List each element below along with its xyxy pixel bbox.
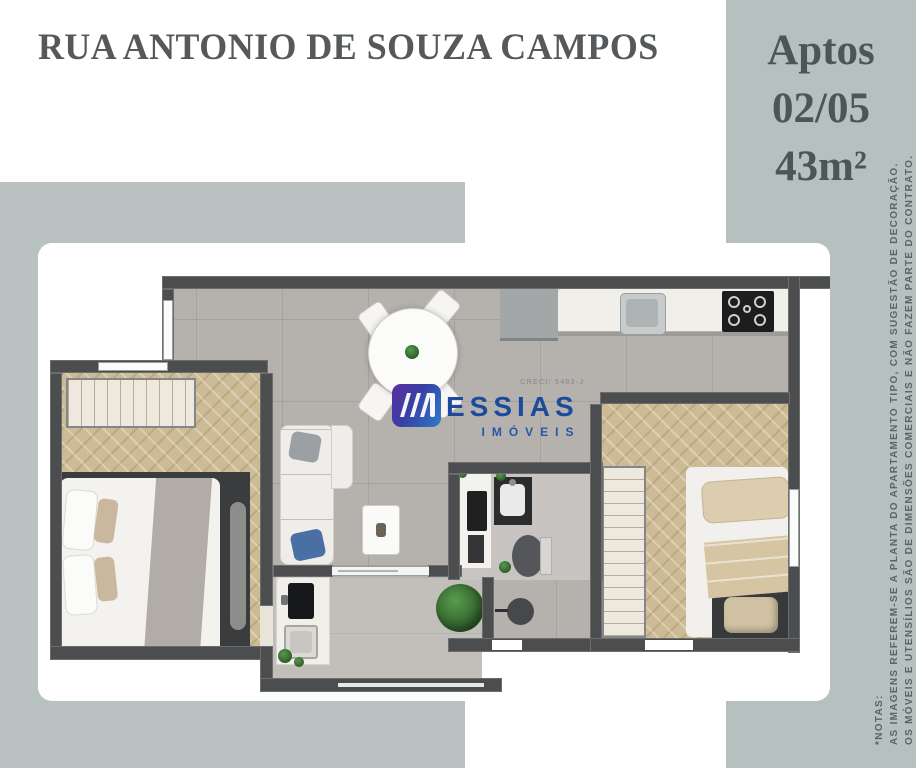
laundry-faucet-icon — [281, 595, 288, 605]
bath-sink — [500, 484, 525, 516]
window — [163, 300, 173, 360]
messias-logo-icon — [392, 384, 441, 427]
table-plant-icon — [405, 345, 419, 359]
bedroom2-wardrobe — [602, 466, 646, 638]
wall-segment — [600, 392, 790, 404]
sliding-door-rail — [338, 570, 398, 572]
wall-segment — [162, 276, 830, 289]
stool-stem — [495, 609, 508, 612]
bedroom1-wardrobe — [66, 378, 196, 428]
kitchen-cabinet — [500, 289, 558, 341]
kitchen-sink-basin — [626, 299, 658, 327]
tv-icon — [467, 491, 487, 531]
tv-console — [468, 535, 484, 563]
wall-segment — [788, 276, 800, 653]
wall-segment — [273, 565, 333, 577]
wall-segment — [260, 373, 273, 606]
brand-subtitle: IMÓVEIS — [456, 425, 606, 439]
wall-segment — [448, 462, 603, 474]
stool — [507, 598, 534, 625]
burner-icon — [743, 305, 751, 313]
door-opening — [645, 640, 693, 650]
plant-icon — [278, 649, 292, 663]
notes-header: *NOTAS: — [872, 45, 887, 745]
legal-notes-vertical: *NOTAS: AS IMAGENS REFEREM-SE A PLANTA D… — [872, 45, 916, 745]
bath-faucet-icon — [509, 479, 516, 486]
wall-segment — [50, 646, 268, 660]
notes-line-2: OS MÓVEIS E UTENSÍLIOS SÃO DE DIMENSÕES … — [902, 45, 916, 745]
wall-segment — [448, 638, 603, 652]
street-title: RUA ANTONIO DE SOUZA CAMPOS — [38, 26, 659, 69]
creci-number: CRECI: 5493-J — [520, 377, 584, 386]
sofa-chaise — [331, 425, 353, 489]
burner-icon — [728, 314, 740, 326]
burner-icon — [754, 296, 766, 308]
real-estate-flyer: RUA ANTONIO DE SOUZA CAMPOS Aptos 02/05 … — [0, 0, 916, 768]
sofa-pillow-gray — [288, 431, 322, 464]
burner-icon — [754, 314, 766, 326]
floor-plan-canvas: ESSIAS IMÓVEIS CRECI: 5493-J — [38, 243, 830, 701]
bed2-blanket — [704, 535, 793, 598]
bed1-pillow — [61, 489, 98, 552]
bed2-pillow — [701, 476, 792, 524]
brand-name: ESSIAS — [446, 391, 579, 423]
door-opening — [492, 640, 522, 650]
wall-segment — [590, 638, 800, 652]
window — [789, 489, 799, 567]
plant-icon — [499, 561, 511, 573]
door-opening — [260, 606, 273, 646]
laundry-sink — [288, 583, 314, 619]
bed2-bench — [724, 597, 778, 633]
wall-segment — [448, 474, 460, 580]
coffee-table-decor — [376, 523, 386, 537]
shrub-icon — [436, 584, 484, 632]
bed1-side-cushion — [230, 502, 246, 630]
wall-segment — [590, 404, 602, 650]
bed1-pillow — [62, 554, 98, 616]
burner-icon — [728, 296, 740, 308]
window — [98, 362, 168, 371]
balcony-glass-line — [338, 683, 484, 687]
plant-icon — [294, 657, 304, 667]
toilet-tank — [540, 537, 552, 575]
notes-line-1: AS IMAGENS REFEREM-SE A PLANTA DO APARTA… — [887, 45, 902, 745]
washer-basket — [290, 631, 312, 653]
wall-segment — [50, 373, 62, 660]
